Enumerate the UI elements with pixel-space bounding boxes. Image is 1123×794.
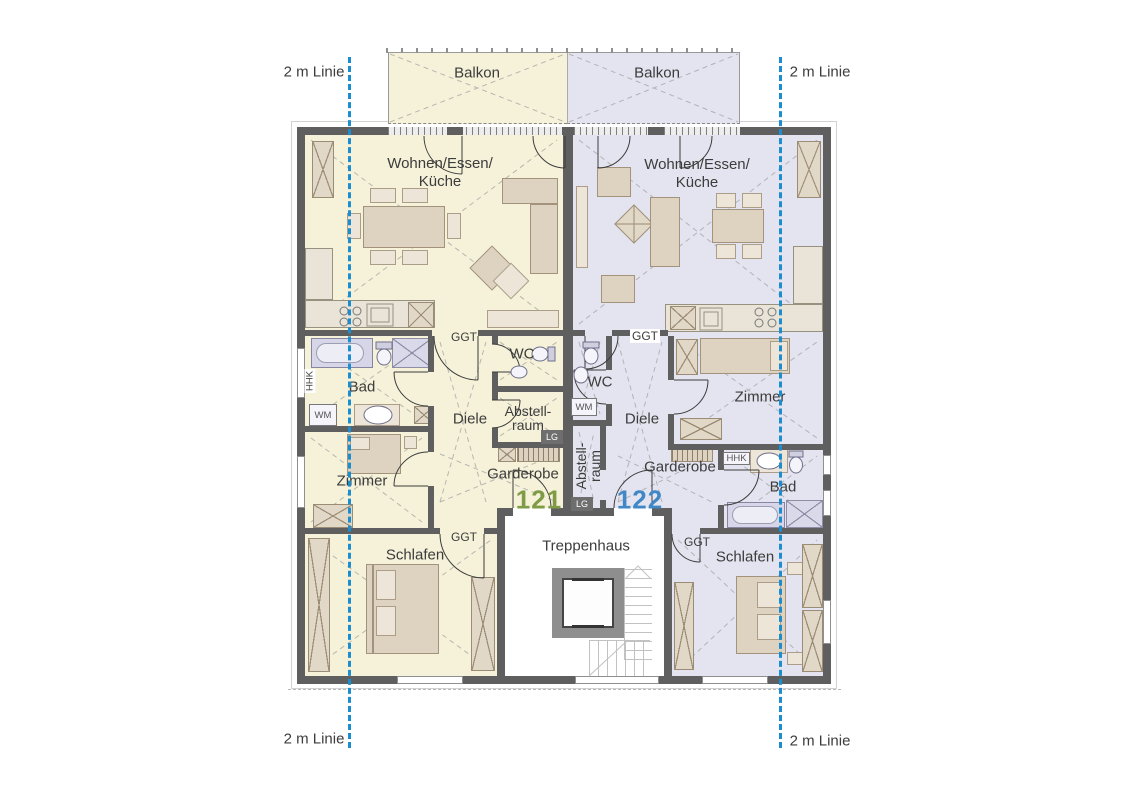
balcony-left-label: Balkon — [454, 65, 500, 82]
room-label-living-121: Wohnen/Essen/ Küche — [387, 155, 493, 191]
hhk-label: HHK — [726, 453, 746, 464]
guide-label-top-right: 2 m Linie — [790, 64, 851, 81]
vent-badge: LG — [541, 430, 563, 444]
washing-machine-badge: WM — [309, 404, 337, 426]
ggt-tag: GGT — [451, 330, 477, 344]
balcony-right-label: Balkon — [634, 65, 680, 82]
apartment-number-122: 122 — [617, 485, 663, 516]
living-122-line2: Küche — [644, 174, 750, 192]
door-arcs — [394, 136, 759, 578]
guide-label-bottom-left: 2 m Linie — [284, 731, 345, 748]
room-label-zimmer-122: Zimmer — [735, 389, 786, 406]
ggt-tag: GGT — [684, 535, 710, 549]
room-label-wc-122: WC — [588, 374, 613, 391]
abstell-122-line2: raum — [588, 443, 602, 490]
room-label-diele-121: Diele — [453, 411, 487, 428]
ggt-tag: GGT — [451, 530, 477, 544]
abstell-121-line1: Abstell- — [505, 404, 552, 418]
vent-badge: LG — [571, 497, 593, 511]
apartment-number-121: 121 — [516, 485, 562, 516]
floor-plan: WM WM LG LG HHK HHK 2 m Linie 2 m Linie … — [0, 0, 1123, 794]
lg-label: LG — [576, 499, 588, 509]
abstell-122-line1: Abstell- — [574, 443, 588, 490]
room-label-schlafen-122: Schlafen — [716, 549, 774, 566]
living-121-line1: Wohnen/Essen/ — [387, 155, 493, 173]
ggt-tag: GGT — [630, 329, 660, 343]
room-label-abstellraum-122: Abstell- raum — [574, 443, 602, 490]
stair-marks — [589, 566, 650, 676]
wm-label: WM — [576, 402, 593, 413]
room-label-treppenhaus: Treppenhaus — [542, 538, 630, 555]
heating-badge: HHK — [305, 369, 316, 393]
room-label-wc-121: WC — [510, 346, 535, 363]
abstell-121-line2: raum — [505, 418, 552, 432]
lg-label: LG — [546, 432, 558, 442]
guide-label-top-left: 2 m Linie — [284, 64, 345, 81]
doors-fixtures-overlay — [0, 0, 1123, 794]
guide-label-bottom-right: 2 m Linie — [790, 733, 851, 750]
room-label-garderobe-121: Garderobe — [487, 466, 559, 483]
room-label-zimmer-121: Zimmer — [337, 473, 388, 490]
stove-burners — [340, 304, 776, 330]
wm-label: WM — [315, 410, 332, 421]
living-121-line2: Küche — [387, 173, 493, 191]
room-label-bad-121: Bad — [349, 379, 376, 396]
room-label-diele-122: Diele — [625, 411, 659, 428]
washing-machine-badge: WM — [571, 398, 597, 416]
room-label-bad-122: Bad — [770, 479, 797, 496]
room-label-schlafen-121: Schlafen — [386, 547, 444, 564]
room-label-garderobe-122: Garderobe — [644, 459, 716, 476]
guide-line-right — [779, 57, 782, 748]
guide-line-left — [348, 57, 351, 748]
room-label-abstellraum-121: Abstell- raum — [505, 404, 552, 432]
heating-badge: HHK — [723, 452, 750, 465]
hhk-label: HHK — [305, 371, 316, 391]
room-label-living-122: Wohnen/Essen/ Küche — [644, 156, 750, 192]
living-122-line1: Wohnen/Essen/ — [644, 156, 750, 174]
